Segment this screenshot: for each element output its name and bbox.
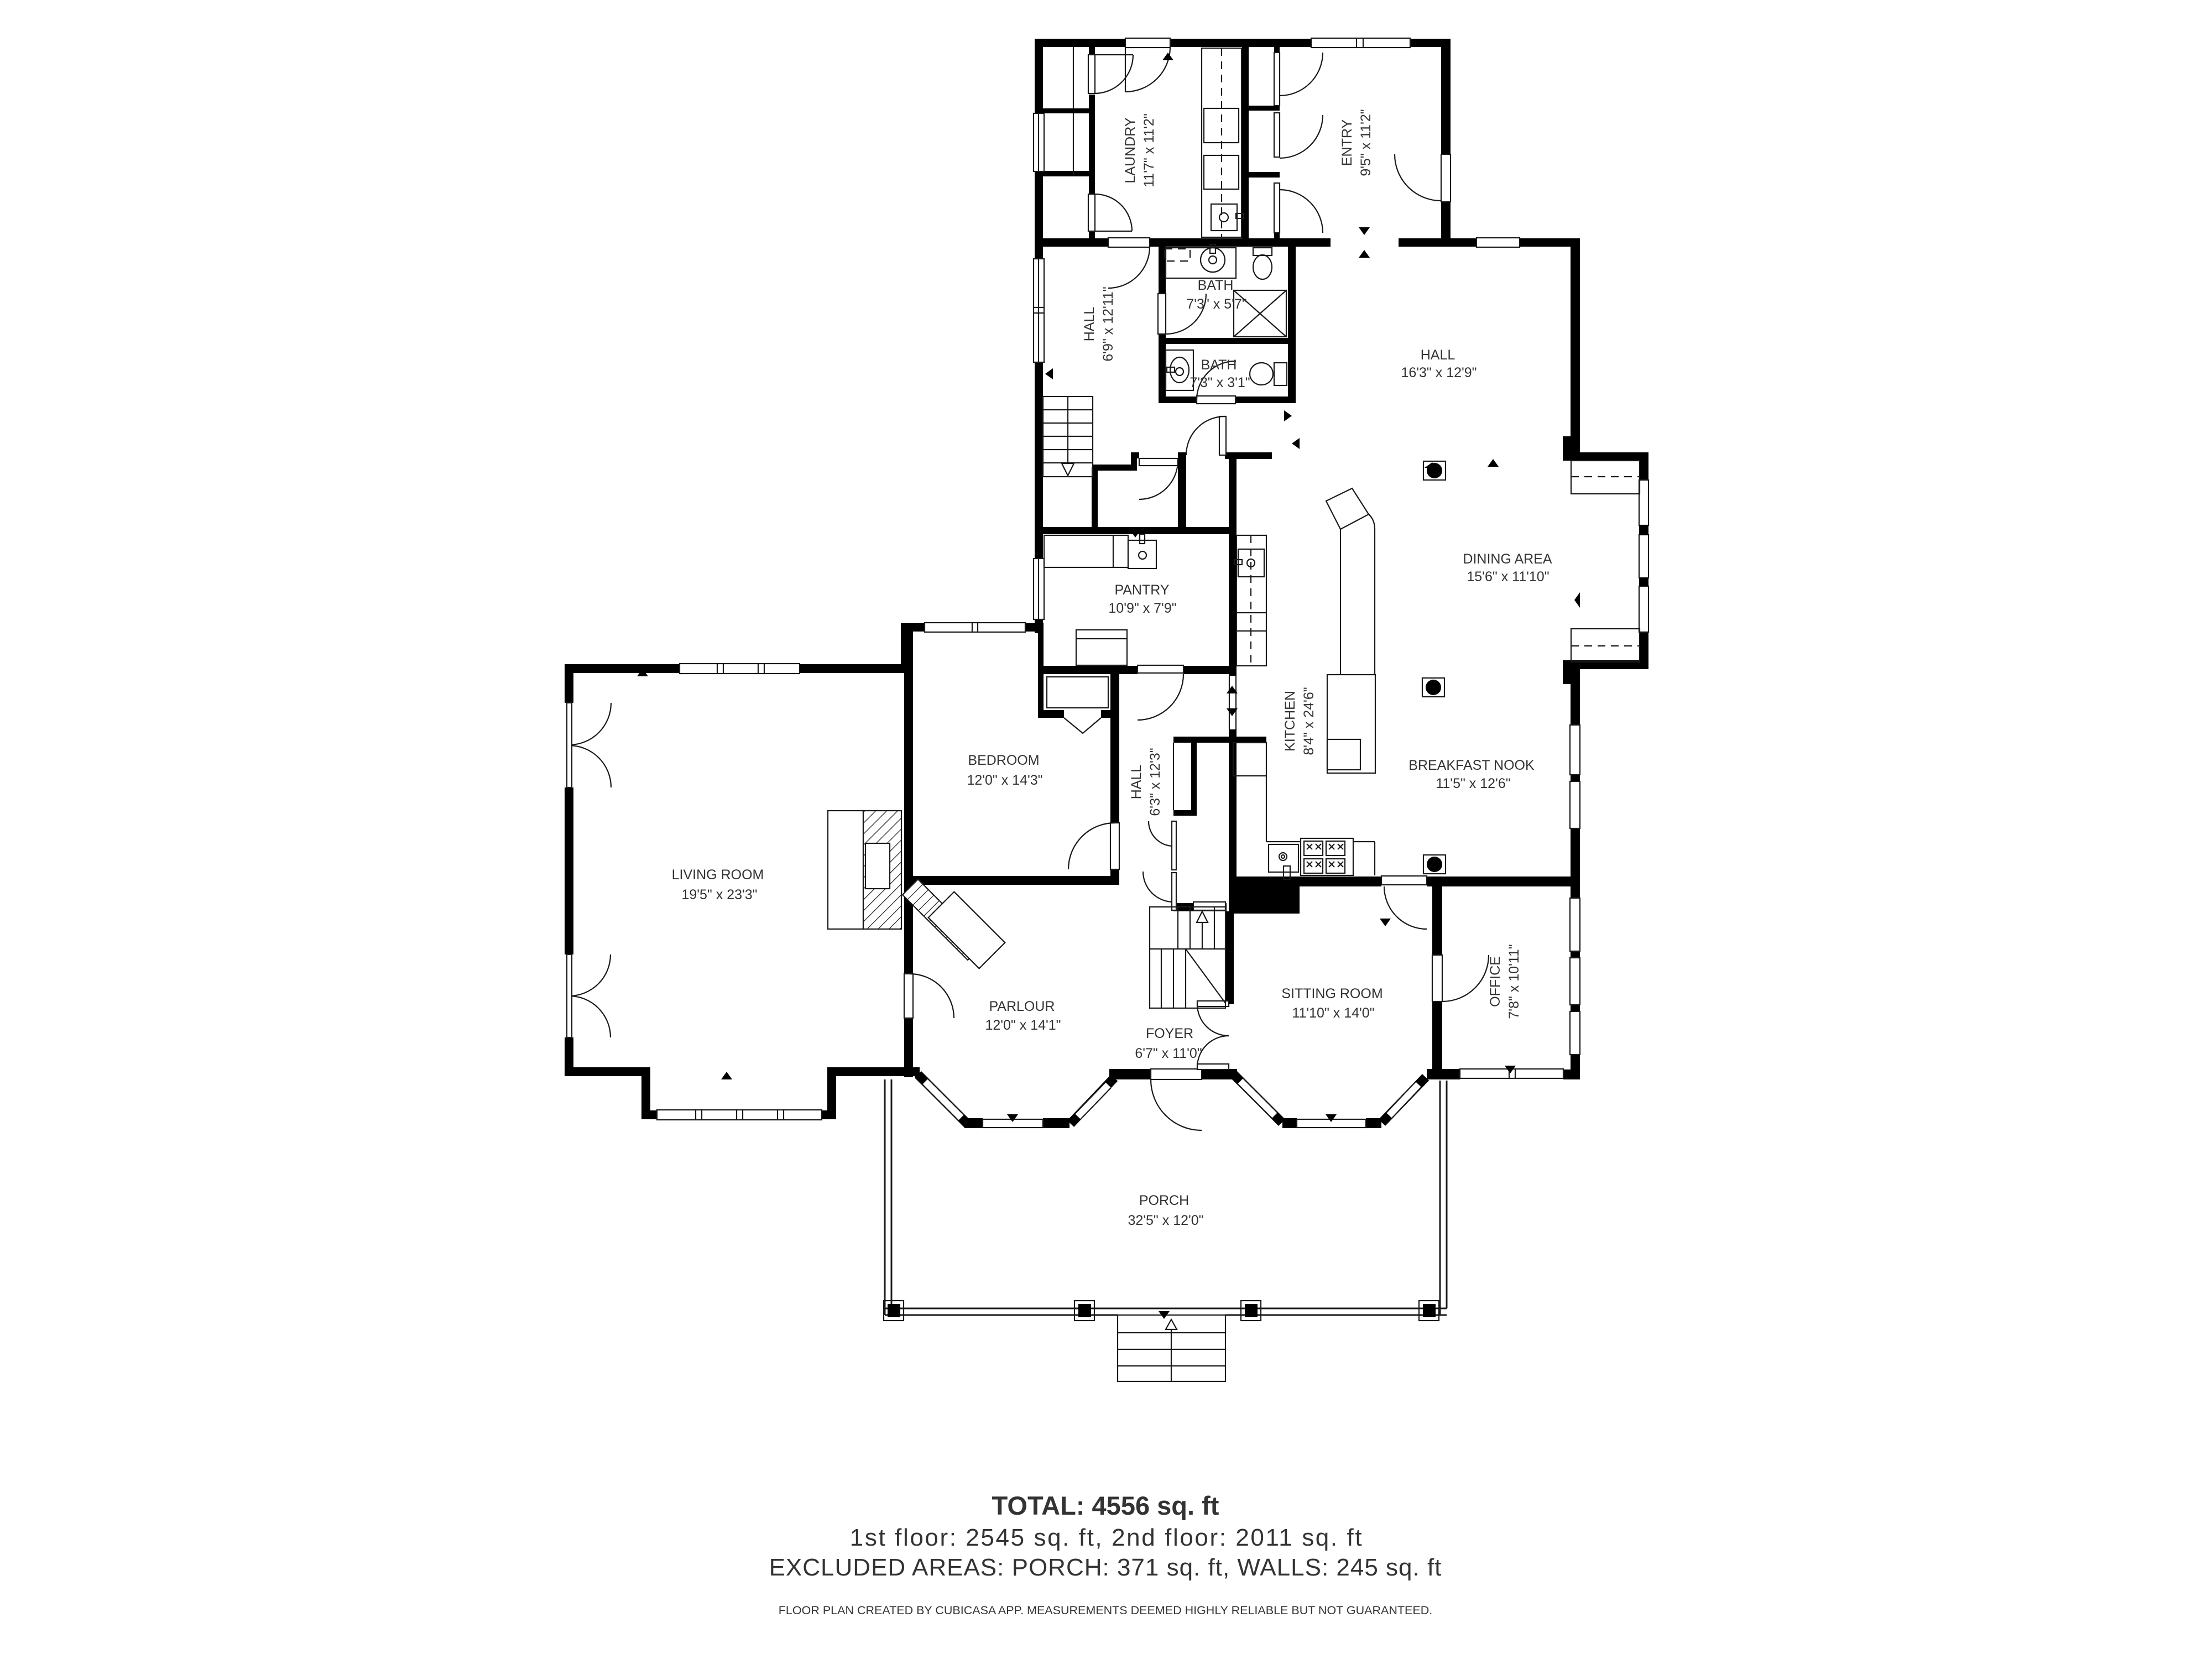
svg-text:8'4" x 24'6": 8'4" x 24'6" xyxy=(1301,687,1317,755)
svg-text:LIVING ROOM: LIVING ROOM xyxy=(672,867,764,883)
svg-text:DINING AREA: DINING AREA xyxy=(1463,551,1552,567)
svg-text:ENTRY: ENTRY xyxy=(1339,119,1355,166)
svg-text:SITTING ROOM: SITTING ROOM xyxy=(1281,986,1383,1001)
svg-text:TOTAL: 4556 sq. ft: TOTAL: 4556 sq. ft xyxy=(992,1491,1219,1520)
svg-text:FOYER: FOYER xyxy=(1146,1026,1193,1041)
svg-text:PORCH: PORCH xyxy=(1139,1193,1189,1208)
svg-text:1st floor: 2545 sq. ft, 2nd fl: 1st floor: 2545 sq. ft, 2nd floor: 2011 … xyxy=(850,1524,1363,1551)
svg-text:FLOOR PLAN CREATED BY CUBICASA: FLOOR PLAN CREATED BY CUBICASA APP. MEAS… xyxy=(779,1604,1432,1617)
svg-text:6'9" x 12'11": 6'9" x 12'11" xyxy=(1100,286,1116,361)
svg-text:HALL: HALL xyxy=(1129,765,1144,800)
svg-text:9'5" x 11'2": 9'5" x 11'2" xyxy=(1358,109,1374,176)
svg-text:7'3" x 5'7": 7'3" x 5'7" xyxy=(1186,296,1246,312)
svg-text:BATH: BATH xyxy=(1198,278,1234,293)
svg-text:BREAKFAST NOOK: BREAKFAST NOOK xyxy=(1408,758,1535,773)
svg-text:HALL: HALL xyxy=(1421,347,1455,363)
svg-text:BEDROOM: BEDROOM xyxy=(968,753,1039,768)
svg-text:EXCLUDED AREAS: PORCH: 371 sq.: EXCLUDED AREAS: PORCH: 371 sq. ft, WALLS… xyxy=(769,1554,1442,1581)
svg-text:KITCHEN: KITCHEN xyxy=(1282,691,1298,752)
svg-text:10'9" x 7'9": 10'9" x 7'9" xyxy=(1108,601,1176,616)
svg-text:7'8" x 10'11": 7'8" x 10'11" xyxy=(1506,944,1522,1019)
svg-text:7'3" x 3'1": 7'3" x 3'1" xyxy=(1190,375,1250,390)
svg-text:11'7" x 11'2": 11'7" x 11'2" xyxy=(1141,113,1157,187)
svg-text:HALL: HALL xyxy=(1082,307,1097,342)
svg-text:OFFICE: OFFICE xyxy=(1488,956,1503,1007)
svg-text:PARLOUR: PARLOUR xyxy=(989,999,1055,1014)
svg-text:PANTRY: PANTRY xyxy=(1114,582,1169,598)
svg-text:12'0" x 14'3": 12'0" x 14'3" xyxy=(967,773,1042,788)
svg-text:16'3" x 12'9": 16'3" x 12'9" xyxy=(1401,365,1477,380)
svg-text:19'5" x 23'3": 19'5" x 23'3" xyxy=(681,887,757,902)
svg-text:11'5" x 12'6": 11'5" x 12'6" xyxy=(1436,776,1510,791)
svg-text:6'7" x 11'0": 6'7" x 11'0" xyxy=(1135,1046,1202,1061)
svg-text:BATH: BATH xyxy=(1201,357,1237,373)
svg-text:15'6" x 11'10": 15'6" x 11'10" xyxy=(1467,569,1549,585)
svg-text:32'5" x 12'0": 32'5" x 12'0" xyxy=(1128,1213,1203,1228)
svg-text:LAUNDRY: LAUNDRY xyxy=(1123,117,1138,183)
svg-text:11'10" x 14'0": 11'10" x 14'0" xyxy=(1292,1005,1374,1021)
svg-text:12'0" x 14'1": 12'0" x 14'1" xyxy=(985,1018,1061,1033)
svg-text:6'3" x 12'3": 6'3" x 12'3" xyxy=(1147,748,1163,816)
